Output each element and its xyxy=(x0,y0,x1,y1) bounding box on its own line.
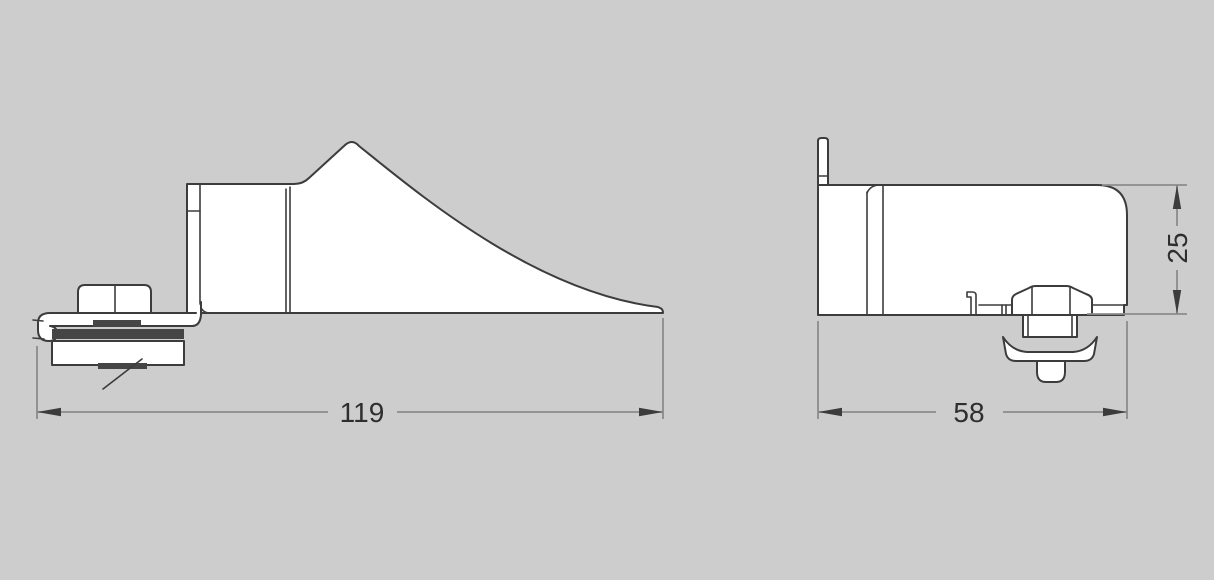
dimension-label-25: 25 xyxy=(1162,232,1193,263)
drawing-canvas: 119 xyxy=(0,0,1214,580)
nut-block xyxy=(1023,315,1077,337)
dimension-label-58: 58 xyxy=(953,397,984,428)
foot-hook-tick xyxy=(33,320,43,321)
end-view: 58 25 xyxy=(818,138,1193,428)
foot-hook-tick xyxy=(33,338,44,339)
dimension-label-119: 119 xyxy=(340,397,385,428)
arrowhead-right xyxy=(1103,408,1127,416)
rubber-pad-upper xyxy=(93,320,141,327)
arrowhead-right xyxy=(639,408,663,416)
rubber-pad-strip xyxy=(52,329,184,339)
wing-nut xyxy=(1003,337,1097,361)
arrowhead-top xyxy=(1173,185,1181,209)
side-view: 119 xyxy=(33,142,663,428)
stop-block-profile xyxy=(187,142,663,313)
hex-bolt-head-end xyxy=(1012,286,1092,315)
arrowhead-bottom xyxy=(1173,290,1181,314)
nut-bottom-tab xyxy=(1037,361,1065,382)
arrowhead-left xyxy=(818,408,842,416)
clamp-tab xyxy=(98,363,147,369)
technical-drawing: 119 xyxy=(0,0,1214,580)
arrowhead-left xyxy=(37,408,61,416)
dimension-end-width: 58 xyxy=(818,321,1127,428)
bracket-tab xyxy=(818,138,828,184)
clamp-plate xyxy=(52,341,184,365)
